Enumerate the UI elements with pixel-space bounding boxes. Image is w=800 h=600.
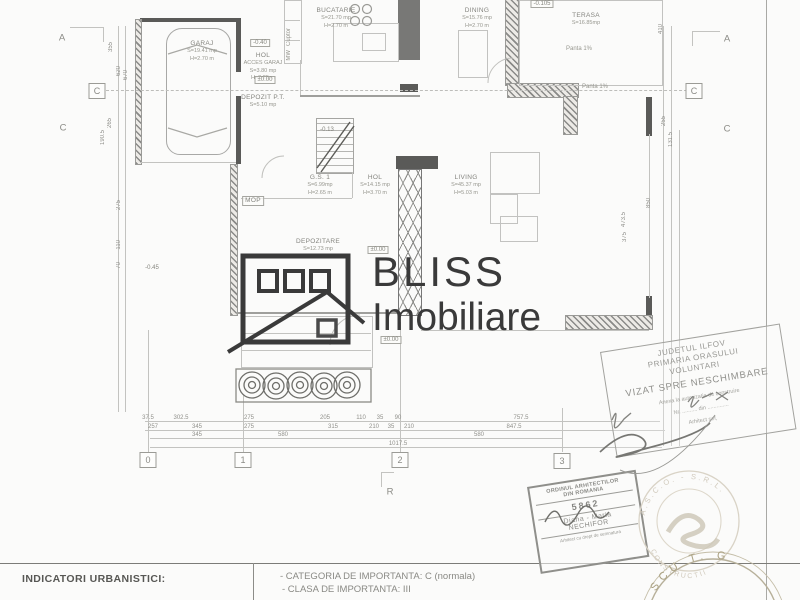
room-detail: H=3.70 m <box>360 190 390 197</box>
round-stamp-logo-swirl <box>668 516 718 547</box>
kitchen-sink <box>362 33 386 51</box>
room-name: GARAJ <box>187 40 217 48</box>
footer-divider <box>253 563 254 600</box>
room-label: HOLS=14.15 mpH=3.70 m <box>360 174 390 197</box>
room-detail: S=15.76 mp <box>462 15 492 22</box>
room-detail: H=2.70 m <box>462 23 492 30</box>
retaining-band <box>566 316 652 329</box>
partition <box>300 95 420 97</box>
room-detail: S=3.80 mp <box>244 68 283 75</box>
dimension-text: 275 <box>244 424 254 430</box>
a-right-leader-h <box>692 31 720 32</box>
room-label: MOP <box>242 196 264 206</box>
dimension-text: 35 <box>377 415 384 421</box>
watermark-brand-text: BLISS <box>372 248 506 296</box>
room-detail: H=2.70 m <box>296 254 340 261</box>
svg-text:A.S.C.O. - S.R.L.: A.S.C.O. - S.R.L. <box>638 472 728 516</box>
dimension-text: 345 <box>192 432 202 438</box>
room-detail: H=2.65 m <box>307 190 332 197</box>
grid-bubble-2: 2 <box>392 452 409 468</box>
dining-table <box>458 30 488 78</box>
architects-order-stamp: ORDINUL ARHITECTILOR DIN ROMANIA 5862 Di… <box>527 470 649 574</box>
room-name: HOL <box>244 52 283 60</box>
dimension-text: 37.5 <box>142 415 154 421</box>
wall-dining-terasa <box>506 0 518 85</box>
grid-bubble-3: 3 <box>554 453 571 469</box>
room-label: DEPOZIT P.T.S=5.10 mp <box>241 94 285 110</box>
a-left-leader-h <box>70 27 103 28</box>
room-detail: S=45.37 mp <box>451 182 481 189</box>
dimension-text: 345 <box>192 424 202 430</box>
wall-garaj-hol-upper <box>236 18 241 72</box>
dimension-text: 205 <box>320 415 330 421</box>
room-detail: H=5.03 m <box>451 190 481 197</box>
wall-terasa-vertical <box>564 97 577 134</box>
grid-bubble-A: A <box>724 34 730 45</box>
spiral-paving-decoration <box>236 369 371 402</box>
porch-step <box>241 333 371 334</box>
dimension-text-vertical: 620 <box>116 66 122 76</box>
dimension-text-vertical: 670 <box>123 70 129 80</box>
room-detail: S=16.85mp <box>572 20 600 27</box>
grid-bubble-C: C <box>60 123 67 134</box>
dimension-text-vertical: 190.5 <box>100 130 106 145</box>
axis-3-extension <box>562 408 563 452</box>
dimension-text: 275 <box>244 415 254 421</box>
room-detail: S=12.73 mp <box>296 246 340 253</box>
grid-bubble-A: A <box>59 33 65 44</box>
annotation-text: Panta 1% <box>582 84 608 90</box>
dimension-text-vertical: 275 <box>116 200 122 210</box>
grid-bubble-R: R <box>387 487 394 498</box>
room-name: G.S. 1 <box>307 174 332 182</box>
svg-text:CONSTRUCTII: CONSTRUCTII <box>649 548 709 580</box>
dim-chain-left-2 <box>125 26 126 412</box>
room-label: LIVINGS=45.37 mpH=5.03 m <box>451 174 481 197</box>
room-label: DEPOZITARES=12.73 mpH=2.70 m <box>296 238 340 261</box>
grid-bubble-C: C <box>686 83 703 99</box>
grid-bubble-0: 0 <box>140 452 157 468</box>
dimension-text: 210 <box>404 424 414 430</box>
dimension-text-vertical: 255 <box>661 116 667 126</box>
scanned-floor-plan-page: BLISS Imobiliare GARAJS=19.41 mpH=2.70 m… <box>0 0 800 600</box>
dimension-text-vertical: 375 <box>622 232 628 242</box>
wall-garage-top <box>140 18 238 22</box>
shaft-cap <box>396 156 438 169</box>
dimension-text: 302.5 <box>173 415 188 421</box>
room-name: DEPOZIT P.T. <box>241 94 285 102</box>
annotation-text: Panta 1% <box>566 46 592 52</box>
room-name: MOP <box>242 196 264 206</box>
dimension-text-vertical: 355 <box>108 42 114 52</box>
corner-partial-stamp: SCU T. G <box>640 549 786 600</box>
level-marker: -0.105 <box>530 0 553 8</box>
dimension-text-vertical: 265 <box>107 118 113 128</box>
porch-step <box>241 350 371 351</box>
wall-lower-left <box>231 165 237 315</box>
page-border-right <box>766 0 767 600</box>
dimension-text: 580 <box>474 432 484 438</box>
fridge-block <box>398 0 420 60</box>
dimension-text-vertical: 473.5 <box>621 212 627 227</box>
axis-c-line <box>106 90 692 91</box>
dimension-text: 90 <box>395 415 402 421</box>
room-label: DININGS=15.76 mpH=2.70 m <box>462 7 492 30</box>
dimension-text: 757.5 <box>513 415 528 421</box>
dimension-text-vertical: 410 <box>658 24 664 34</box>
room-name: TERASA <box>572 12 600 20</box>
grid-bubble-C: C <box>724 124 731 135</box>
footer-title: INDICATORI URBANISTICI: <box>22 573 166 585</box>
dimension-text: 210 <box>369 424 379 430</box>
dim-row-line-3 <box>150 438 562 439</box>
room-label: G.S. 1S=6.99mpH=2.65 m <box>307 174 332 197</box>
watermark-brand-subtext: Imobiliare <box>372 296 541 340</box>
room-detail: ACCES GARAJ <box>244 60 283 67</box>
corner-stamp-text: SCU T. G <box>648 549 731 593</box>
dimension-text: 1017.5 <box>389 441 407 447</box>
dimension-text: 580 <box>278 432 288 438</box>
voluntari-approval-stamp: JUDETUL ILFOV PRIMARIA ORASULUI VOLUNTAR… <box>600 324 796 458</box>
dimension-text-vertical: 850 <box>646 198 652 208</box>
axis-0-extension <box>148 330 149 452</box>
room-detail: H=2.70 m <box>187 56 217 63</box>
round-stamp-bottom-text: CONSTRUCTII <box>649 548 709 580</box>
room-name: HOL <box>360 174 390 182</box>
dimension-text-vertical: 131.5 <box>668 132 674 147</box>
wall-garage-left <box>136 20 141 164</box>
dimension-text: 35 <box>388 424 395 430</box>
svg-text:SCU T. G: SCU T. G <box>648 549 731 593</box>
coffee-table <box>500 216 538 242</box>
a-left-leader-v <box>103 27 104 42</box>
footer-class-line: - CLASA DE IMPORTANTA: III <box>282 584 411 595</box>
garage-bottom-line <box>140 162 236 163</box>
grid-bubble-C: C <box>89 83 106 99</box>
level-marker: -0.45 <box>145 265 159 271</box>
room-detail: S=21.70 mp <box>317 15 356 22</box>
annotation-text: MW <box>286 50 292 61</box>
entrance-porch <box>241 316 373 368</box>
dim-row-line-4 <box>150 447 662 448</box>
cabinet-divider <box>284 20 300 21</box>
room-detail: H=2.70 m <box>317 23 356 30</box>
dimension-text: 257 <box>148 424 158 430</box>
partition <box>352 172 353 198</box>
room-name: DEPOZITARE <box>296 238 340 246</box>
level-marker: ±0.00 <box>255 76 276 84</box>
dimension-text: 847.5 <box>506 424 521 430</box>
footer-top-border <box>0 563 800 564</box>
dimension-text-vertical: 110 <box>116 240 122 250</box>
room-label: BUCATARIES=21.70 mpH=2.70 m <box>317 7 356 30</box>
room-name: LIVING <box>451 174 481 182</box>
room-detail: S=6.99mp <box>307 182 332 189</box>
round-stamp-top-text: A.S.C.O. - S.R.L. <box>638 472 728 516</box>
a-right-leader-v <box>692 31 693 46</box>
sofa-large <box>490 152 540 194</box>
dim-chain-left-1 <box>118 26 119 412</box>
r-leader-v <box>381 472 382 487</box>
level-marker: -0.13 <box>320 127 334 133</box>
r-leader-h <box>381 472 394 473</box>
room-detail: S=5.10 mp <box>241 102 285 109</box>
grid-bubble-1: 1 <box>235 452 252 468</box>
room-name: BUCATARIE <box>317 7 356 15</box>
room-detail: S=14.15 mp <box>360 182 390 189</box>
dim-row-line-1 <box>145 421 660 422</box>
room-label: GARAJS=19.41 mpH=2.70 m <box>187 40 217 63</box>
living-right-line <box>649 134 650 298</box>
room-detail: S=19.41 mp <box>187 48 217 55</box>
dim-row-line-2 <box>145 430 665 431</box>
footer-category-line: - CATEGORIA DE IMPORTANTA: C (normala) <box>280 571 475 582</box>
level-marker: -0.40 <box>250 39 270 47</box>
dimension-text-vertical: 70 <box>116 262 122 269</box>
annotation-text: Cuptor <box>286 28 292 46</box>
room-label: TERASAS=16.85mp <box>572 12 600 28</box>
wall-living-right-a <box>646 97 652 136</box>
dimension-text: 315 <box>328 424 338 430</box>
room-name: DINING <box>462 7 492 15</box>
dimension-text: 110 <box>356 415 366 421</box>
